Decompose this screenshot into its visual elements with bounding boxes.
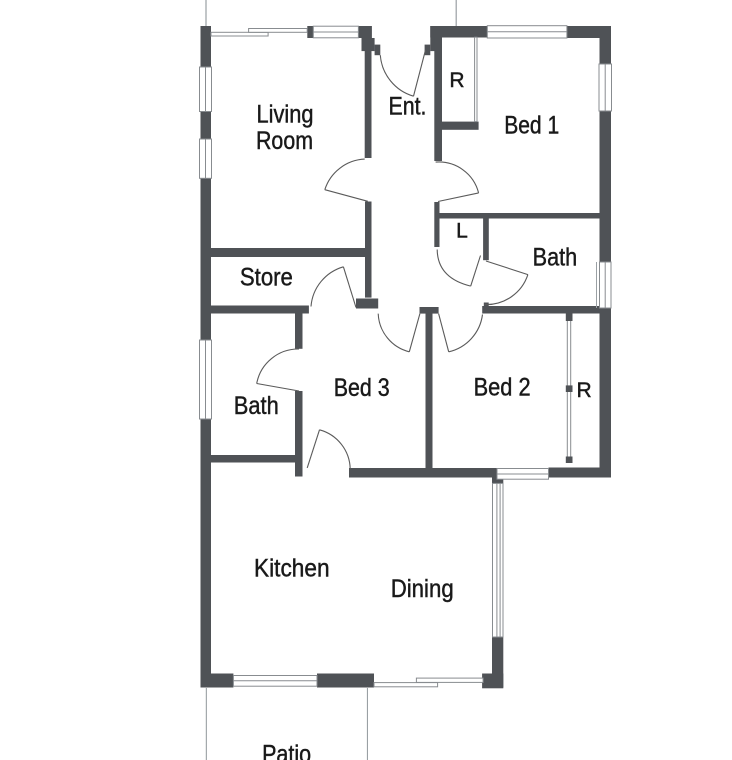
- svg-text:Kitchen: Kitchen: [254, 554, 330, 582]
- svg-text:Bath: Bath: [533, 244, 578, 272]
- svg-text:Store: Store: [240, 263, 293, 291]
- svg-text:Bed 2: Bed 2: [474, 373, 531, 401]
- svg-text:Room: Room: [256, 127, 313, 155]
- svg-text:Living: Living: [257, 100, 314, 128]
- svg-text:L: L: [456, 220, 468, 243]
- svg-text:Bed 3: Bed 3: [334, 374, 390, 402]
- svg-text:Dining: Dining: [391, 575, 454, 603]
- svg-text:Ent.: Ent.: [389, 93, 427, 121]
- svg-text:Bath: Bath: [234, 392, 279, 420]
- svg-text:R: R: [577, 379, 592, 402]
- svg-text:R: R: [449, 69, 464, 92]
- svg-text:Bed 1: Bed 1: [504, 112, 559, 140]
- svg-text:Patio: Patio: [262, 740, 311, 760]
